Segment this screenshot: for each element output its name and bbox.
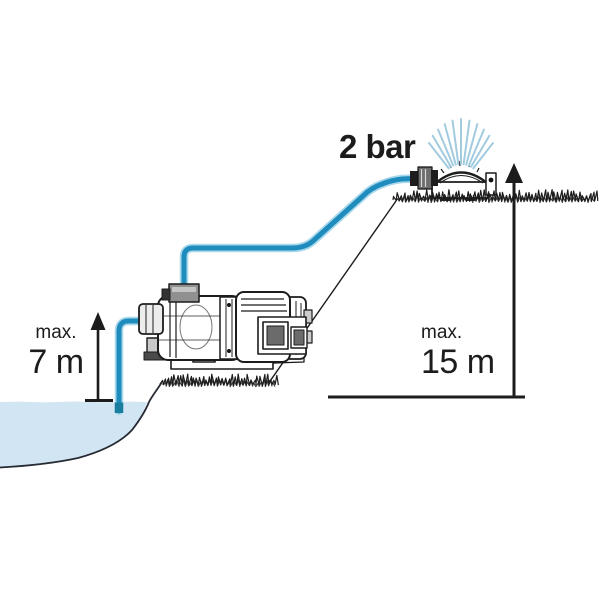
pond-water: [0, 402, 147, 468]
delivery-max-prefix: max.: [421, 322, 531, 344]
pump-outlet-port: [169, 284, 199, 302]
hose-coupling: [410, 167, 438, 189]
pressure-label: 2 bar: [339, 128, 415, 166]
suction-max-prefix: max.: [10, 322, 102, 344]
spray-jets: [429, 119, 493, 168]
suction-height-value: 7 m: [10, 345, 102, 379]
pump-inlet-port: [139, 304, 163, 334]
pump-illustration: [139, 284, 312, 369]
arrow-head-up: [505, 163, 523, 183]
delivery-height-value: 15 m: [421, 345, 531, 379]
pump-installation-diagram: 2 bar max. 7 m max. 15 m: [0, 0, 600, 600]
suction-height-label: max. 7 m: [10, 322, 102, 379]
delivery-height-label: max. 15 m: [421, 322, 531, 379]
delivery-hose: [184, 179, 414, 295]
diagram-artwork: [0, 0, 600, 600]
